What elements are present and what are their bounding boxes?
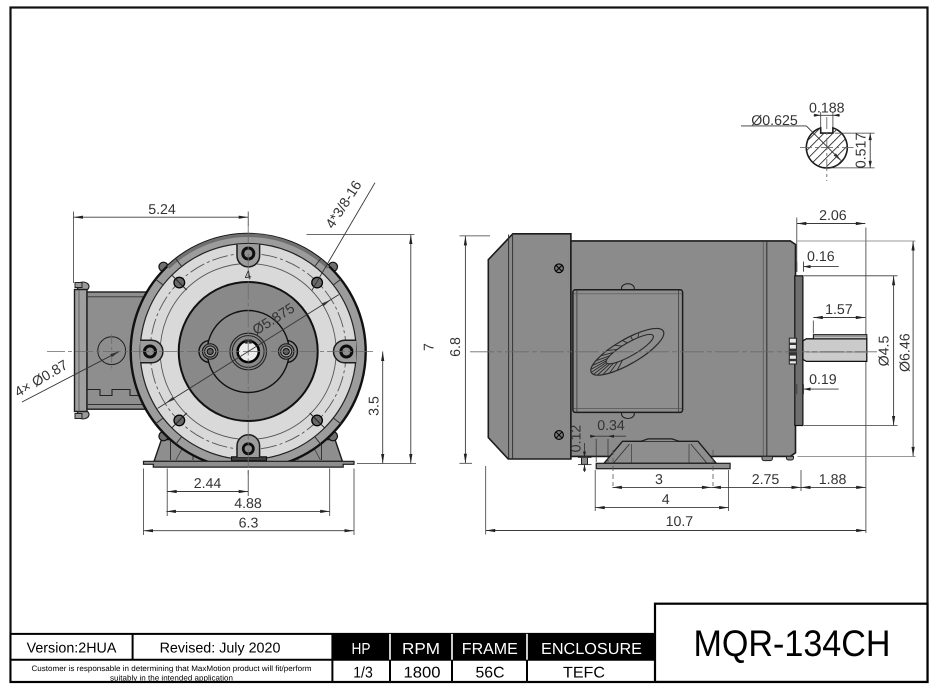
svg-text:6.3: 6.3 bbox=[239, 515, 259, 531]
svg-text:HP: HP bbox=[352, 641, 371, 658]
svg-text:0.517: 0.517 bbox=[854, 133, 870, 169]
svg-text:0.12: 0.12 bbox=[569, 425, 585, 453]
svg-text:RPM: RPM bbox=[402, 641, 440, 658]
svg-text:5.24: 5.24 bbox=[148, 202, 176, 218]
svg-text:Revised: July 2020: Revised: July 2020 bbox=[160, 640, 281, 656]
svg-text:0.34: 0.34 bbox=[597, 418, 625, 434]
svg-text:Ø0.625: Ø0.625 bbox=[751, 113, 798, 129]
svg-text:Version:2HUA: Version:2HUA bbox=[27, 640, 117, 656]
svg-text:0.19: 0.19 bbox=[809, 372, 837, 388]
svg-text:0.16: 0.16 bbox=[807, 249, 835, 265]
svg-text:3: 3 bbox=[655, 472, 663, 488]
svg-text:2.06: 2.06 bbox=[819, 208, 847, 224]
svg-text:56C: 56C bbox=[476, 665, 505, 682]
svg-text:suitably in the intended appli: suitably in the intended application bbox=[110, 673, 233, 682]
svg-text:4: 4 bbox=[662, 492, 670, 508]
svg-text:2.44: 2.44 bbox=[194, 476, 222, 492]
svg-text:1.88: 1.88 bbox=[819, 472, 847, 488]
svg-text:Ø4.5: Ø4.5 bbox=[877, 336, 893, 367]
svg-text:2.75: 2.75 bbox=[752, 472, 780, 488]
svg-text:1.57: 1.57 bbox=[825, 302, 853, 318]
svg-text:0.188: 0.188 bbox=[809, 100, 845, 116]
svg-text:Ø6.46: Ø6.46 bbox=[898, 333, 914, 372]
svg-text:1/3: 1/3 bbox=[353, 665, 373, 682]
svg-text:FRAME: FRAME bbox=[462, 641, 518, 658]
svg-text:TEFC: TEFC bbox=[563, 665, 605, 682]
svg-text:Customer is responsable in det: Customer is responsable in determining t… bbox=[32, 664, 312, 673]
svg-text:3.5: 3.5 bbox=[366, 396, 382, 416]
svg-text:ENCLOSURE: ENCLOSURE bbox=[541, 641, 642, 658]
svg-text:10.7: 10.7 bbox=[666, 514, 694, 530]
svg-text:7: 7 bbox=[422, 343, 438, 351]
svg-text:6.8: 6.8 bbox=[448, 337, 464, 357]
svg-text:1800: 1800 bbox=[404, 665, 441, 682]
svg-text:4.88: 4.88 bbox=[234, 496, 262, 512]
svg-text:MQR-134CH: MQR-134CH bbox=[694, 623, 891, 664]
